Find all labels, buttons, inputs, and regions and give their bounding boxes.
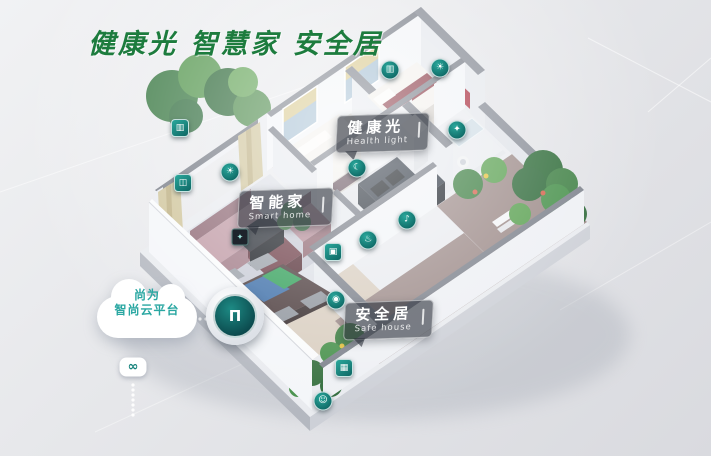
label-smart-home: 智能家 Smart home xyxy=(237,187,333,228)
label-accent-bar xyxy=(418,122,421,138)
label-smart-home-en: Smart home xyxy=(248,210,311,222)
cloud-line1: 尚为 xyxy=(134,288,160,302)
window-control-icon: ◫ xyxy=(174,174,192,192)
security-camera-icon: ◉ xyxy=(327,291,346,310)
media-device-icon: ✦ xyxy=(232,229,249,246)
speaker-icon: ♪ xyxy=(398,211,417,230)
sleep-mode-icon: ☾ xyxy=(348,159,367,178)
curtain-motor-icon: ▥ xyxy=(381,61,400,80)
light-control-icon: ☀ xyxy=(221,163,240,182)
gas-sensor-icon: ♨ xyxy=(359,231,378,250)
video-doorbell-icon: ☺ xyxy=(314,392,333,411)
switch-panel-icon: ▣ xyxy=(324,243,342,261)
ceiling-light-icon: ☀ xyxy=(431,59,450,78)
label-health-light-en: Health light xyxy=(346,135,408,147)
label-health-light: 健康光 Health light xyxy=(335,112,430,153)
curtain-control-icon: ▥ xyxy=(171,119,189,137)
page-title: 健康光 智慧家 安全居 xyxy=(88,22,383,61)
label-accent-bar xyxy=(321,197,324,213)
house-illustration xyxy=(0,0,711,456)
promo-scene: 健康光 智慧家 安全居 健康光 Health light 智能家 Smart h… xyxy=(0,0,711,456)
label-accent-bar xyxy=(422,309,425,325)
smart-gateway-hub: Π xyxy=(206,287,264,345)
label-safe-house-zh: 安全居 xyxy=(355,305,413,324)
link-icon: ∞ xyxy=(120,358,147,377)
balcony-trees xyxy=(146,54,271,133)
cloud-platform: 尚为 智尚云平台 xyxy=(97,296,197,338)
cloud-platform-name: 尚为 智尚云平台 xyxy=(97,288,197,318)
gateway-icon: Π xyxy=(213,294,257,338)
wall-light-icon: ✦ xyxy=(448,121,467,140)
env-sensor-icon: ▦ xyxy=(335,359,353,377)
label-safe-house-en: Safe house xyxy=(354,322,412,334)
cloud-line2: 智尚云平台 xyxy=(114,303,179,317)
label-safe-house: 安全居 Safe house xyxy=(343,299,434,340)
